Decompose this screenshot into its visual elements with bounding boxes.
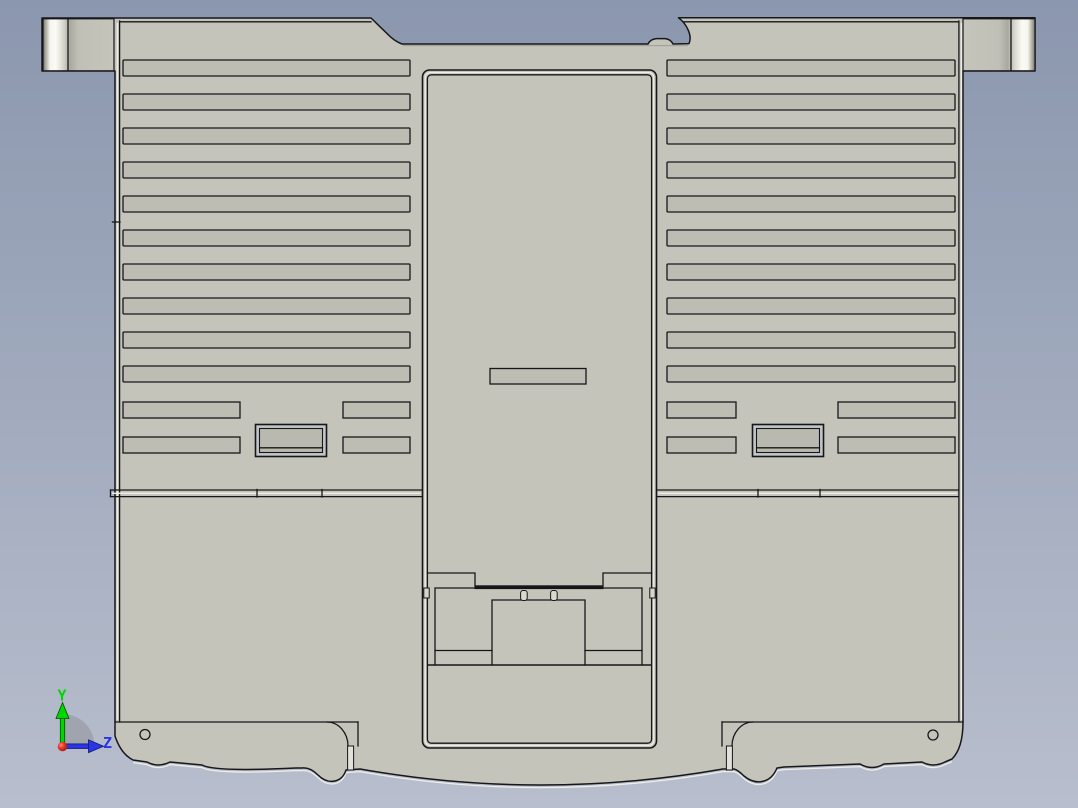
center-panel-face[interactable] xyxy=(423,70,657,748)
origin-point xyxy=(58,742,68,752)
dock-pin xyxy=(551,591,558,601)
latch-slider[interactable] xyxy=(757,429,820,453)
vent-slot-short[interactable] xyxy=(667,437,736,453)
vent-slot[interactable] xyxy=(123,60,410,76)
vent-slot-short[interactable] xyxy=(838,437,955,453)
vent-slot[interactable] xyxy=(667,128,955,144)
z-axis-label: Z xyxy=(103,734,112,752)
center-panel-slot[interactable] xyxy=(490,369,586,385)
center-panel[interactable] xyxy=(423,70,657,748)
battery-latch-left[interactable] xyxy=(256,425,327,457)
vent-slot[interactable] xyxy=(667,366,955,382)
vent-slot[interactable] xyxy=(123,94,410,110)
latch-slider[interactable] xyxy=(260,429,323,453)
vent-slot[interactable] xyxy=(123,298,410,314)
vent-slot-short[interactable] xyxy=(838,402,955,418)
vent-slot[interactable] xyxy=(123,128,410,144)
vent-slot[interactable] xyxy=(123,162,410,178)
vent-slot-short[interactable] xyxy=(343,437,410,453)
hinge-barrel-left-face[interactable] xyxy=(43,19,114,71)
vent-slot-short[interactable] xyxy=(123,402,240,418)
vent-slot[interactable] xyxy=(123,332,410,348)
foot-bumper xyxy=(348,746,354,770)
hinge-barrel-left[interactable] xyxy=(43,19,114,71)
vent-slot[interactable] xyxy=(667,298,955,314)
vent-slot[interactable] xyxy=(667,60,955,76)
hinge-barrel-right-face[interactable] xyxy=(963,19,1035,71)
vent-slot[interactable] xyxy=(667,332,955,348)
dock-clip xyxy=(424,588,429,598)
part-bottom-cover[interactable] xyxy=(42,18,1035,788)
y-axis-label: Y xyxy=(57,687,66,705)
vent-slot[interactable] xyxy=(123,230,410,246)
dock-pin xyxy=(521,591,528,601)
dock-clip xyxy=(650,588,655,598)
vent-slot[interactable] xyxy=(667,162,955,178)
z-axis-shaft xyxy=(67,744,90,749)
vent-slot[interactable] xyxy=(667,196,955,212)
vent-slot-short[interactable] xyxy=(667,402,736,418)
foot-bumper xyxy=(726,746,732,770)
cad-viewport-stage: Y Z xyxy=(0,0,1078,808)
vent-slot[interactable] xyxy=(123,264,410,280)
vent-slot[interactable] xyxy=(123,196,410,212)
battery-latch-right[interactable] xyxy=(753,425,824,457)
cad-viewport[interactable]: Y Z xyxy=(0,0,1078,808)
vent-slot-short[interactable] xyxy=(343,402,410,418)
vent-slot[interactable] xyxy=(123,366,410,382)
vent-slot[interactable] xyxy=(667,230,955,246)
hinge-barrel-right[interactable] xyxy=(963,19,1035,71)
vent-slot[interactable] xyxy=(667,94,955,110)
vent-slot[interactable] xyxy=(667,264,955,280)
vent-slot-short[interactable] xyxy=(123,437,240,453)
